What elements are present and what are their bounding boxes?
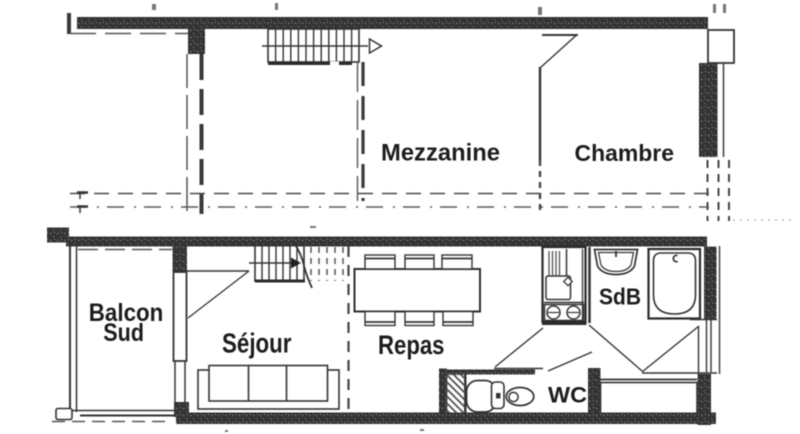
svg-text:Séjour: Séjour: [222, 328, 292, 359]
svg-text:Mezzanine: Mezzanine: [381, 140, 500, 167]
svg-text:Chambre: Chambre: [575, 140, 675, 166]
svg-text:WC: WC: [548, 383, 587, 408]
svg-text:Sud: Sud: [103, 319, 144, 347]
svg-text:Repas: Repas: [378, 330, 445, 360]
svg-text:SdB: SdB: [599, 284, 641, 310]
